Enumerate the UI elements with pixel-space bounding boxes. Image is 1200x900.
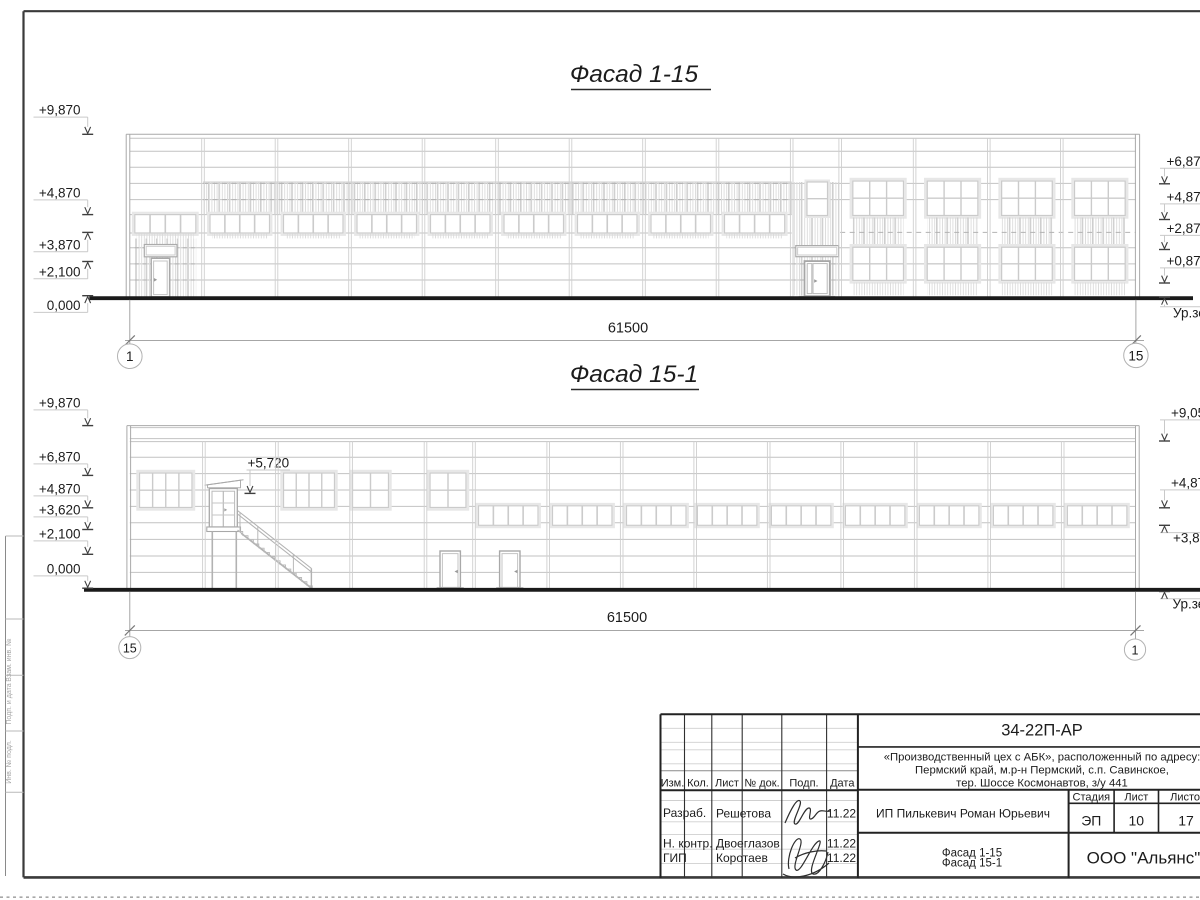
svg-text:+4,870: +4,870 — [39, 482, 81, 497]
svg-text:1: 1 — [1132, 643, 1139, 657]
svg-text:ИП Пилькевич Роман Юрьевич: ИП Пилькевич Роман Юрьевич — [876, 807, 1050, 821]
svg-text:15: 15 — [1128, 348, 1143, 363]
svg-text:11.22: 11.22 — [827, 837, 856, 851]
svg-text:1: 1 — [126, 349, 134, 364]
svg-text:ООО "Альянс": ООО "Альянс" — [1087, 848, 1200, 867]
svg-text:+0,870: +0,870 — [1167, 254, 1200, 269]
svg-text:Подп.: Подп. — [789, 777, 818, 789]
svg-text:Пермский край, м.р-н Пермский,: Пермский край, м.р-н Пермский, с.п. Сави… — [915, 765, 1169, 777]
svg-text:+2,100: +2,100 — [39, 264, 81, 279]
svg-text:+4,870: +4,870 — [1167, 190, 1200, 205]
svg-text:ГИП: ГИП — [663, 851, 687, 865]
svg-text:Взам. инв. №: Взам. инв. № — [6, 638, 13, 681]
svg-text:+5,720: +5,720 — [248, 456, 290, 471]
svg-text:ЭП: ЭП — [1081, 813, 1101, 829]
svg-text:+6,870: +6,870 — [39, 450, 81, 465]
svg-text:+2,870: +2,870 — [1167, 221, 1200, 236]
svg-text:«Производственный цех с АБК»,: «Производственный цех с АБК», расположен… — [884, 752, 1200, 764]
svg-text:+2,100: +2,100 — [39, 527, 81, 542]
svg-text:Подп. и дата: Подп. и дата — [6, 683, 13, 724]
svg-text:+4,870: +4,870 — [1171, 476, 1200, 491]
svg-text:Разраб.: Разраб. — [663, 806, 706, 820]
svg-text:Лист: Лист — [1124, 792, 1148, 804]
svg-text:Стадия: Стадия — [1073, 792, 1111, 804]
svg-text:Коротаев: Коротаев — [716, 851, 768, 865]
svg-text:+4,870: +4,870 — [39, 186, 81, 201]
svg-text:Ур.земли: Ур.земли — [1173, 305, 1200, 320]
svg-text:+9,050: +9,050 — [1171, 406, 1200, 421]
svg-text:Решетова: Решетова — [716, 807, 771, 821]
svg-text:Фасад 1-15: Фасад 1-15 — [570, 61, 699, 88]
svg-text:+9,870: +9,870 — [39, 396, 81, 411]
svg-text:Дата: Дата — [830, 777, 855, 789]
svg-text:0,000: 0,000 — [47, 562, 81, 577]
svg-text:Двоеглазов: Двоеглазов — [716, 837, 780, 851]
svg-text:61500: 61500 — [607, 610, 647, 626]
svg-text:11.22: 11.22 — [827, 851, 856, 865]
svg-text:+6,870: +6,870 — [1167, 154, 1200, 169]
svg-text:0,000: 0,000 — [47, 298, 81, 313]
svg-text:тер. Шоссе Космонавтов, з/у 44: тер. Шоссе Космонавтов, з/у 441 — [956, 778, 1128, 790]
svg-text:№ док.: № док. — [744, 777, 779, 789]
svg-text:10: 10 — [1129, 813, 1145, 829]
svg-text:61500: 61500 — [608, 321, 648, 337]
svg-text:Изм.: Изм. — [661, 777, 685, 789]
svg-text:+9,870: +9,870 — [39, 103, 81, 118]
svg-text:15: 15 — [123, 641, 137, 655]
svg-text:11.22: 11.22 — [827, 807, 856, 821]
svg-text:Лист: Лист — [715, 777, 739, 789]
svg-text:Н. контр.: Н. контр. — [663, 837, 713, 851]
svg-text:Кол.: Кол. — [687, 777, 709, 789]
svg-text:34-22П-АР: 34-22П-АР — [1001, 722, 1083, 740]
svg-text:+3,870: +3,870 — [39, 237, 81, 252]
svg-text:17: 17 — [1178, 813, 1194, 829]
svg-text:Фасад 15-1: Фасад 15-1 — [570, 361, 698, 388]
svg-text:+3,620: +3,620 — [39, 503, 81, 518]
svg-text:Листов: Листов — [1170, 792, 1200, 804]
svg-text:Инв. № подл.: Инв. № подл. — [6, 740, 13, 784]
svg-text:Фасад 15-1: Фасад 15-1 — [942, 858, 1002, 870]
